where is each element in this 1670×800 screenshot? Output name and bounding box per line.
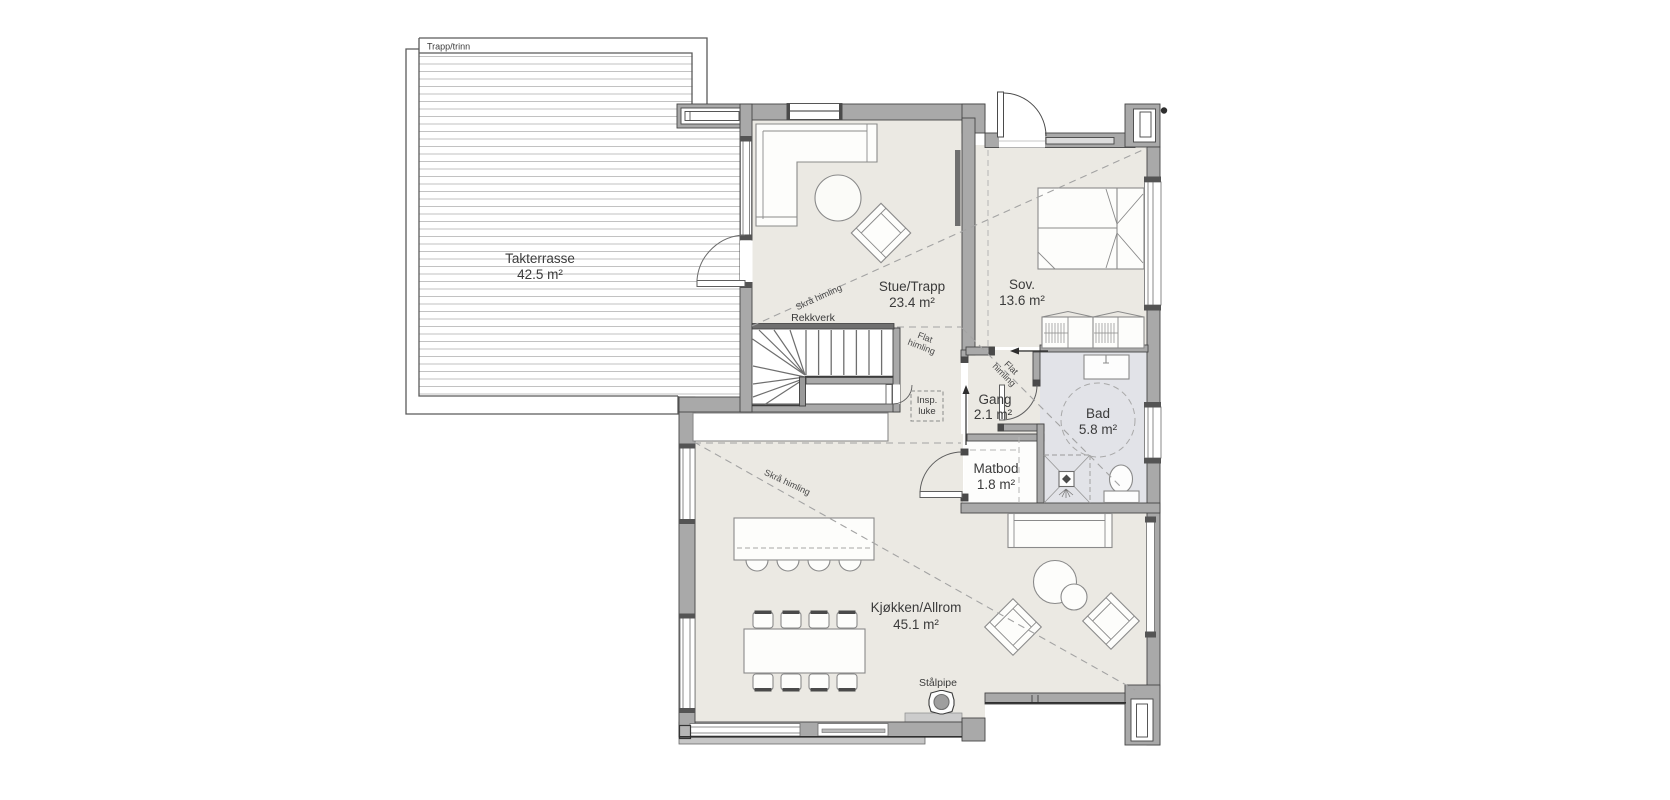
svg-text:45.1 m²: 45.1 m² — [893, 617, 939, 632]
svg-text:Takterrasse: Takterrasse — [505, 251, 575, 266]
svg-text:23.4 m²: 23.4 m² — [889, 295, 935, 310]
svg-text:2.1 m²: 2.1 m² — [974, 407, 1013, 422]
svg-text:Insp.: Insp. — [917, 395, 938, 406]
svg-text:Sov.: Sov. — [1009, 277, 1035, 292]
svg-text:Stue/Trapp: Stue/Trapp — [879, 279, 945, 294]
svg-text:1.8 m²: 1.8 m² — [977, 477, 1016, 492]
svg-text:Matbod: Matbod — [973, 461, 1018, 476]
svg-text:Bad: Bad — [1086, 406, 1110, 421]
svg-text:Stålpipe: Stålpipe — [919, 677, 957, 689]
svg-text:5.8 m²: 5.8 m² — [1079, 422, 1118, 437]
svg-text:42.5 m²: 42.5 m² — [517, 267, 563, 282]
svg-text:luke: luke — [918, 406, 935, 417]
svg-text:Gang: Gang — [978, 392, 1011, 407]
svg-text:Trapp/trinn: Trapp/trinn — [427, 42, 470, 52]
svg-text:13.6 m²: 13.6 m² — [999, 293, 1045, 308]
svg-text:Rekkverk: Rekkverk — [791, 312, 836, 324]
svg-text:Kjøkken/Allrom: Kjøkken/Allrom — [871, 600, 962, 615]
